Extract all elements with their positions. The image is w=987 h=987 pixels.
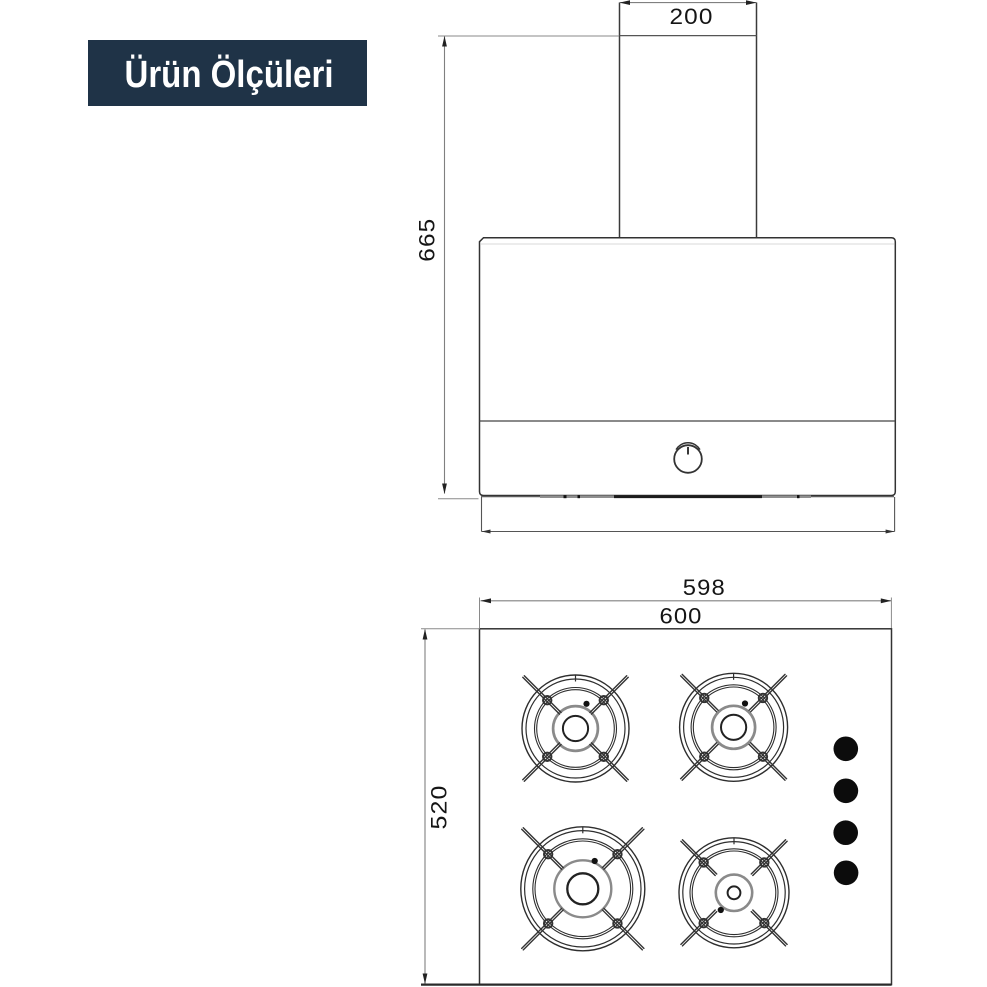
svg-text:665: 665: [415, 218, 440, 262]
svg-text:200: 200: [670, 4, 714, 29]
svg-text:600: 600: [660, 604, 703, 629]
svg-text:598: 598: [683, 575, 726, 600]
svg-text:520: 520: [427, 785, 452, 830]
svg-text:Ürün Ölçüleri: Ürün Ölçüleri: [125, 53, 334, 96]
